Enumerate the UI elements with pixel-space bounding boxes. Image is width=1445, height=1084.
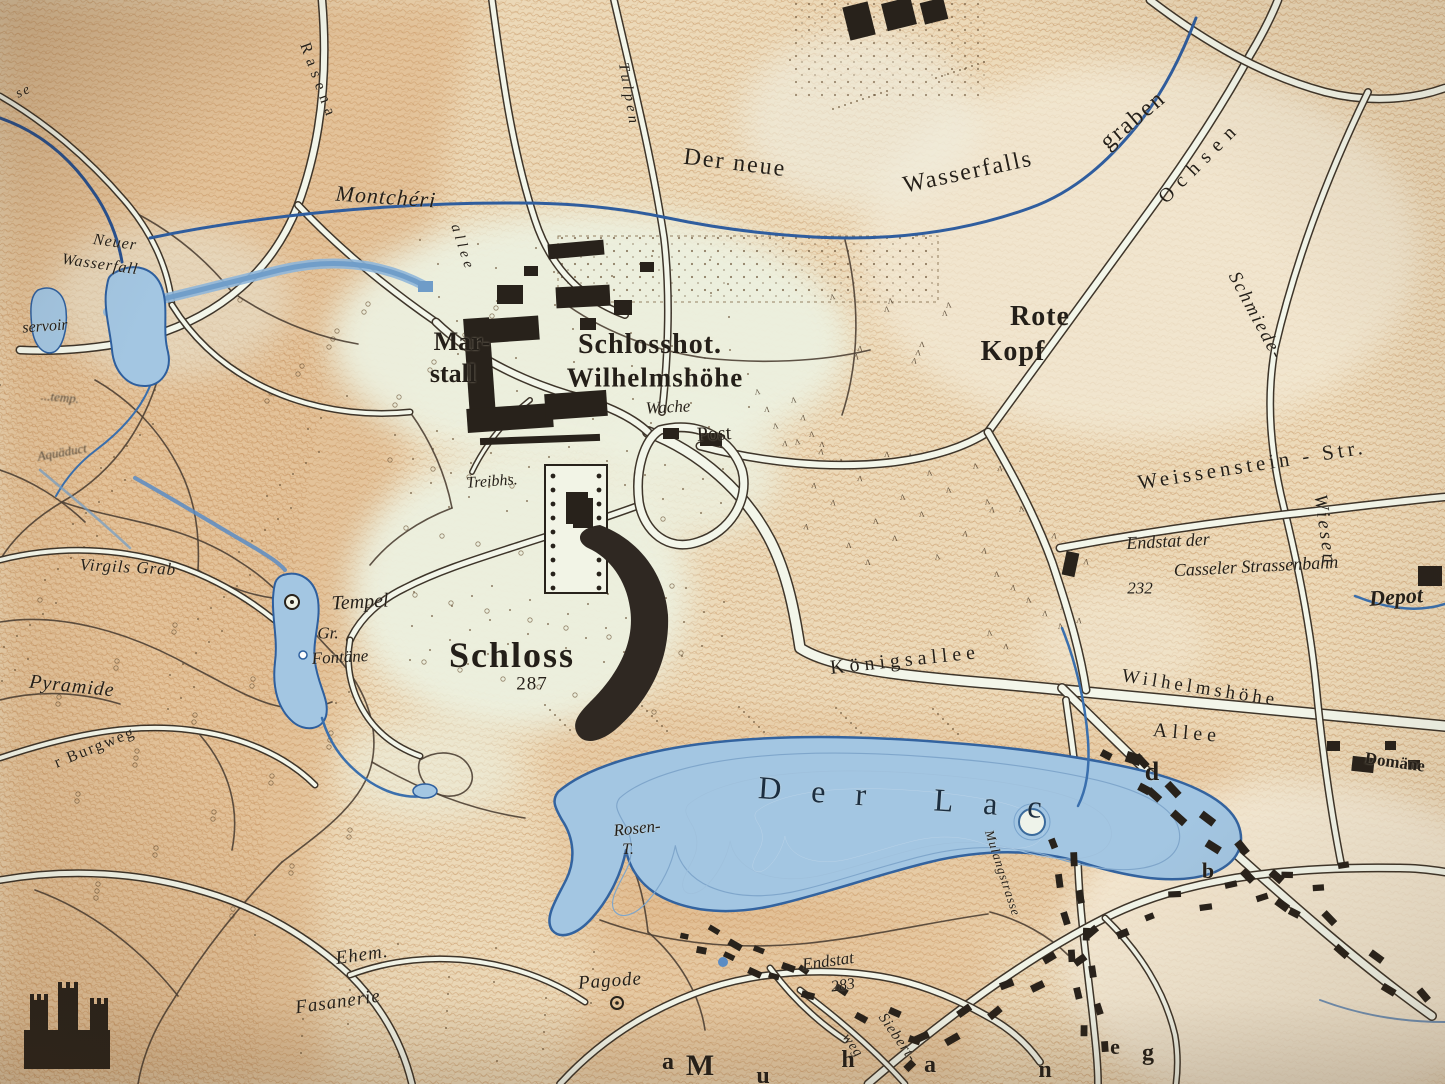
label-232: 232 — [1127, 580, 1153, 597]
label-rasenallee: Rasena — [296, 41, 339, 124]
label-tulpenallee-1: Tulpen — [615, 62, 641, 128]
label-schloss: Schloss — [449, 637, 575, 673]
label-pagode: Pagode — [577, 969, 642, 992]
label-fontaene: Fontäne — [311, 647, 368, 667]
label-casseler: Casseler Strassenbahn — [1173, 553, 1338, 580]
letter-h: h — [841, 1048, 854, 1072]
label-depot: Depot — [1368, 584, 1423, 610]
historical-park-map: ΛΛΛΛΛΛΛΛΛΛΛΛΛΛΛΛΛΛΛΛΛΛΛΛΛΛΛΛΛΛΛΛΛΛΛΛΛΛΛΛ… — [0, 0, 1445, 1084]
label-aquaeduct: Aquäduct — [36, 441, 87, 462]
letter-n: n — [1038, 1058, 1051, 1082]
label-schmiede: Schmiede- — [1225, 269, 1287, 364]
letter-u: u — [756, 1064, 769, 1084]
label-schlosshotel-1: Schlosshot. — [578, 331, 722, 359]
label-graben: graben — [1096, 86, 1171, 154]
label-tempel-frag: ...temp. — [40, 389, 79, 405]
label-marstall-1: Mar- — [434, 329, 491, 355]
letter-a2: a — [924, 1053, 936, 1077]
label-287: 287 — [516, 675, 548, 694]
label-tempel: Tempel — [331, 591, 389, 614]
label-wache: Wache — [645, 397, 691, 416]
label-der-neue: Der neue — [682, 145, 787, 181]
label-endstat-der: Endstat der — [1126, 530, 1210, 552]
label-treibhs: Treibhs. — [466, 472, 518, 492]
label-endstat-283-1: Endstat — [801, 949, 855, 973]
label-se-frag: se — [14, 82, 34, 101]
label-ehem: Ehem. — [334, 942, 389, 968]
label-marstall-2: stall — [430, 361, 476, 387]
label-der-lac: Der Lac — [757, 771, 1072, 825]
label-wasserfalls: Wasserfalls — [901, 147, 1035, 198]
letter-d: d — [1145, 759, 1159, 785]
label-burgweg: r Burgweg — [52, 725, 137, 772]
label-wilhelmshoeher-allee-1: Wilhelmshöhe — [1120, 666, 1279, 709]
label-fasanerie: Fasanerie — [294, 987, 382, 1018]
label-endstat-283-2: 283 — [830, 976, 856, 995]
label-ochsenallee: Ochsen — [1155, 117, 1245, 207]
label-rosen: Rosen- — [613, 817, 662, 839]
label-montcheri: Montchéri — [335, 183, 437, 212]
letter-m: M — [686, 1051, 714, 1081]
label-kopf: Kopf — [981, 338, 1046, 366]
label-wasserfall: Wasserfall — [61, 252, 139, 279]
letter-b: b — [1202, 860, 1214, 882]
letter-a1: a — [662, 1050, 674, 1074]
label-post: Post — [696, 423, 731, 445]
label-domaene: Domäne — [1364, 749, 1426, 774]
map-labels: Der neueWasserfallsgrabenRasenaMontchéri… — [0, 0, 1445, 1084]
label-tulpenallee-2: allee — [447, 222, 476, 273]
label-weissenstein-str: Weissenstein - Str. — [1136, 437, 1368, 494]
label-wilhelmshoeher-allee-2: Allee — [1152, 720, 1222, 746]
label-rote: Rote — [1010, 303, 1070, 331]
label-neuer: Neuer — [92, 232, 138, 254]
label-siebertweg-1: Siebert- — [875, 1011, 919, 1065]
letter-e: e — [1110, 1036, 1120, 1058]
label-schlosshotel-2: Wilhelmshöhe — [567, 365, 744, 392]
label-virgils-grab: Virgils Grab — [79, 556, 176, 578]
label-mulangstrasse: Mulangstrasse — [983, 828, 1023, 917]
label-pyramide: Pyramide — [28, 672, 115, 701]
letter-g: g — [1142, 1041, 1154, 1065]
label-rosen-t: T. — [622, 842, 634, 858]
label-gr: Gr. — [317, 625, 338, 642]
label-reservoir: servoir — [22, 317, 68, 336]
label-koenigsallee: Königsallee — [829, 642, 981, 678]
